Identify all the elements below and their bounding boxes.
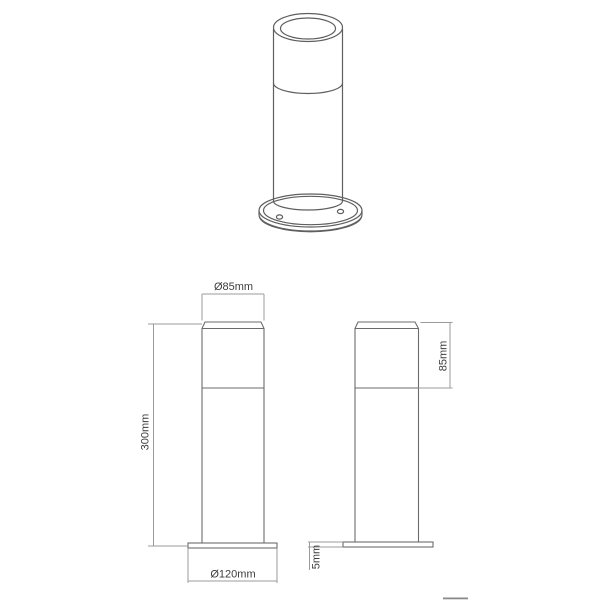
- dimension-base-thickness: 5mm: [308, 542, 343, 570]
- screw-hole-left: [276, 215, 282, 219]
- dimension-top-diameter: Ø85mm: [202, 281, 264, 321]
- lamp-top-rim-inner: [281, 18, 336, 39]
- dimension-overall-height: 300mm: [140, 324, 203, 546]
- body-base-junction: [274, 201, 343, 210]
- bollard-light-drawing: Ø85mm 300mm Ø120mm: [0, 0, 600, 600]
- diffuser-bottom-edge: [274, 83, 343, 93]
- dimension-base-diameter: Ø120mm: [188, 548, 277, 583]
- side-view: 85mm 5mm: [308, 322, 453, 570]
- label-overall-height: 300mm: [140, 414, 152, 451]
- bottom-edge-artifact: [443, 598, 468, 600]
- label-base-diameter: Ø120mm: [210, 569, 255, 581]
- label-top-diameter: Ø85mm: [214, 281, 253, 293]
- label-head-height: 85mm: [438, 341, 450, 372]
- dimension-head-height: 85mm: [419, 323, 453, 389]
- side-base-plate: [343, 542, 433, 547]
- side-body-outline: [355, 322, 419, 542]
- screw-hole-right: [337, 209, 343, 213]
- technical-drawing-canvas: Ø85mm 300mm Ø120mm: [0, 0, 600, 600]
- front-view: Ø85mm 300mm Ø120mm: [140, 281, 278, 583]
- front-body-outline: [202, 322, 264, 543]
- front-base-plate: [188, 543, 277, 548]
- label-base-thickness: 5mm: [311, 545, 323, 569]
- perspective-view: [259, 14, 362, 232]
